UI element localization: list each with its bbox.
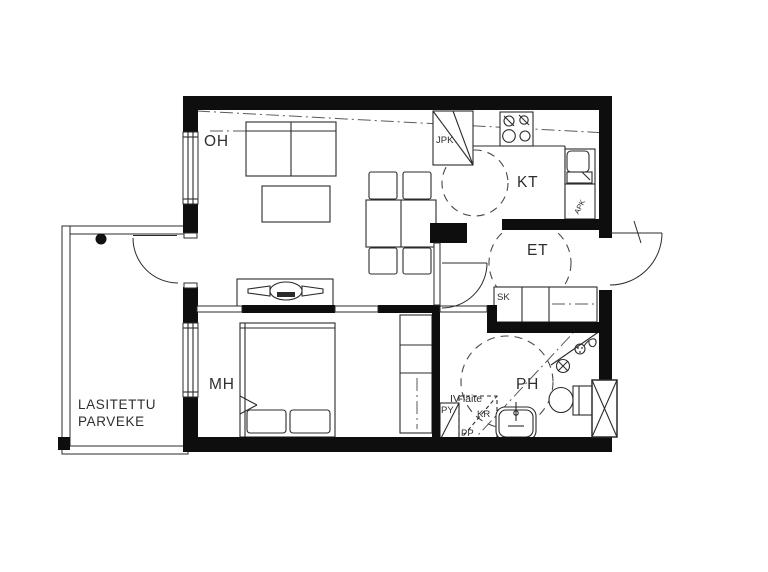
kitchen: [433, 111, 595, 219]
balcony-door-jamb-bottom: [184, 283, 197, 288]
toilet-icon: [549, 386, 594, 415]
balcony-top-glazing: [62, 226, 188, 234]
tv-icon: [270, 282, 302, 300]
interior-door-entry: [442, 263, 487, 308]
kitchen-label: KT: [517, 174, 538, 191]
floor-plan-page: OH KT ET MH PH LASITETTU PARVEKE JPK SK …: [0, 0, 768, 572]
dining-chair: [403, 172, 431, 199]
wall-right-b: [599, 290, 612, 385]
stove-icon: [500, 112, 533, 146]
fridge-label: JPK: [436, 135, 454, 146]
bedroom: [240, 315, 432, 437]
living-room-label: OH: [204, 133, 229, 150]
entry-label: ET: [527, 242, 548, 259]
dryer-label: KR: [477, 409, 490, 420]
wall-living-bedroom-b: [378, 305, 438, 313]
windows: [183, 132, 198, 397]
living-room-window: [183, 132, 198, 204]
bathroom-label: PH: [516, 376, 539, 393]
kitchen-sink-icon: [565, 149, 595, 184]
balcony-left-glazing: [62, 226, 70, 454]
ventilation-unit-label: IV-laite: [450, 393, 482, 405]
wall-left-a: [183, 96, 198, 132]
dining-set: [366, 172, 436, 274]
bedroom-wardrobe: [400, 315, 432, 433]
coffee-table: [262, 186, 330, 222]
cleaning-closet-label: SK: [497, 292, 510, 303]
threshold-entry-corridor: [440, 306, 487, 312]
wall-top: [183, 96, 612, 110]
dining-chair: [403, 248, 431, 274]
balcony-drain-dot: [96, 234, 107, 245]
tv-screen: [277, 292, 295, 297]
duct-shaft: [592, 380, 617, 437]
double-bed: [240, 323, 335, 437]
wall-closet-pillar: [487, 305, 497, 323]
pillow: [247, 410, 286, 433]
dining-chair: [369, 172, 397, 199]
partition-dining-entry: [434, 243, 440, 305]
washing-machine-label: PY: [441, 405, 454, 416]
pillow: [290, 410, 330, 433]
opening-living-bedroom-right: [335, 306, 378, 312]
balcony-corner-post: [58, 437, 70, 450]
washer-reserve-label: PP: [461, 428, 474, 439]
tv-stand: [237, 279, 333, 307]
bathroom-sink-icon: [496, 402, 536, 440]
bedroom-window: [183, 323, 198, 397]
dining-chair: [369, 248, 397, 274]
wall-left-c: [183, 287, 198, 323]
sofa: [246, 122, 336, 176]
balcony-label-line2: PARVEKE: [78, 414, 145, 429]
bedroom-label: MH: [209, 376, 235, 393]
entrance-door: [610, 221, 662, 285]
wall-right-a: [599, 96, 612, 238]
opening-living-bedroom-left: [197, 306, 242, 312]
wall-kitchen-south: [502, 219, 599, 230]
wall-bottom: [183, 437, 612, 452]
wall-living-bedroom-a: [242, 305, 335, 313]
balcony-bottom-glazing: [62, 446, 188, 454]
balcony-door-jamb-top: [184, 233, 197, 238]
wall-bathroom-west: [432, 305, 440, 440]
floor-plan-drawing: OH KT ET MH PH LASITETTU PARVEKE JPK SK …: [0, 0, 768, 572]
balcony-label-line1: LASITETTU: [78, 397, 156, 412]
shower-icon: [551, 331, 600, 373]
wall-pillar-dining: [430, 223, 467, 243]
wall-left-b: [183, 204, 198, 233]
wall-bathroom-north: [487, 322, 599, 333]
living-room: [237, 122, 436, 307]
balcony-door-swing: [133, 238, 178, 283]
